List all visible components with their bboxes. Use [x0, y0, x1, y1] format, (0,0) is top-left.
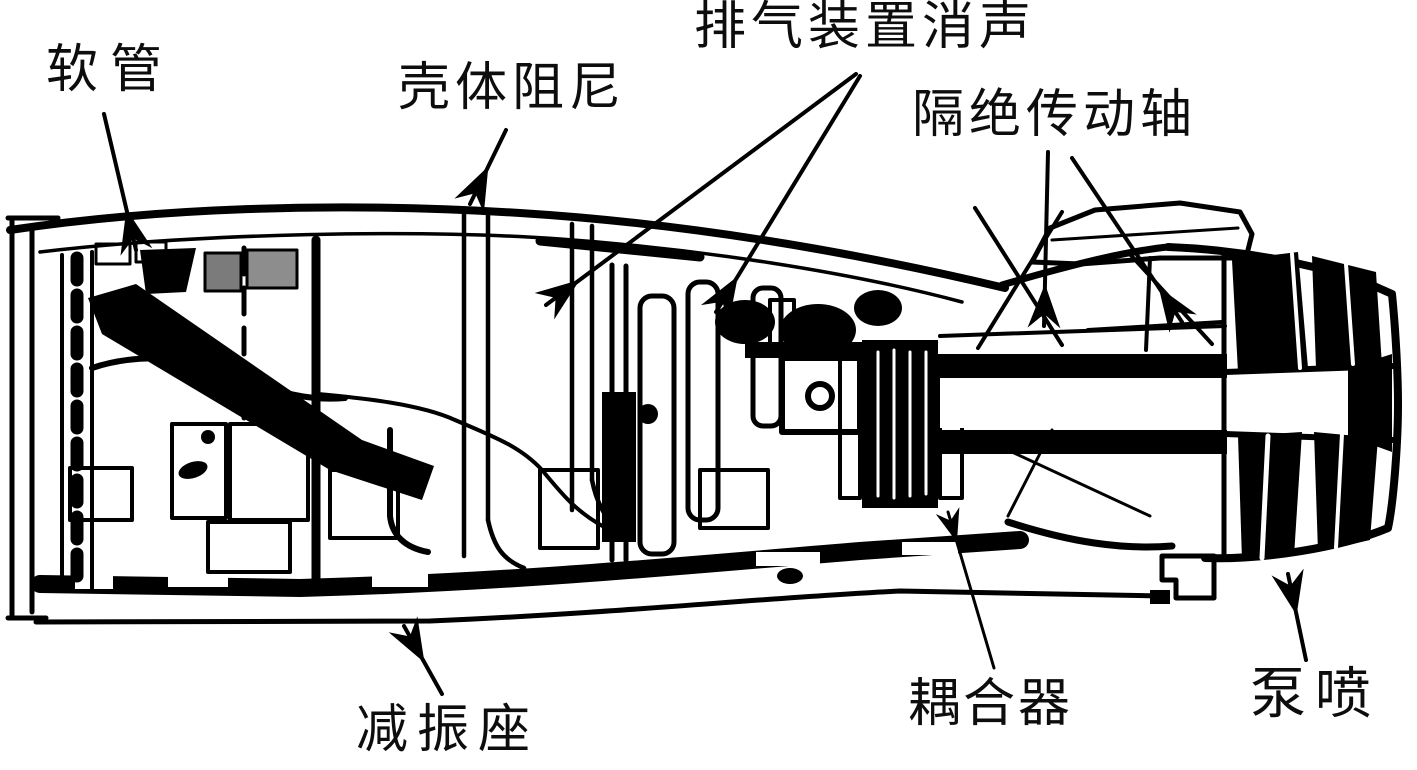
label-exhaust-silencer: 排气装置消声	[694, 1, 1036, 56]
arrow-shaft-1	[1044, 152, 1048, 326]
arrow-vibration-mount	[404, 626, 442, 694]
label-hose: 软管	[46, 44, 174, 99]
arrow-hose	[104, 114, 136, 250]
arrow-exhaust-2	[716, 76, 860, 312]
label-isolated-shaft: 隔绝传动轴	[912, 89, 1197, 144]
arrow-shaft-2	[1072, 158, 1182, 322]
dorsal-housing	[1032, 203, 1252, 264]
arrow-shell-damping	[470, 130, 506, 204]
cutaway-drawing	[0, 0, 1417, 770]
label-shell-damping: 壳体阻尼	[398, 62, 626, 117]
label-pump-jet: 泵喷	[1250, 666, 1380, 725]
label-vibration-mount: 减振座	[356, 704, 539, 759]
label-coupler: 耦合器	[908, 678, 1073, 733]
cutaway-figure: 软管 壳体阻尼 排气装置消声 隔绝传动轴 减振座 耦合器 泵喷	[0, 0, 1417, 770]
arrow-pump-jet	[1288, 574, 1306, 660]
hose-band	[88, 284, 434, 500]
machinery-interior	[62, 212, 962, 590]
